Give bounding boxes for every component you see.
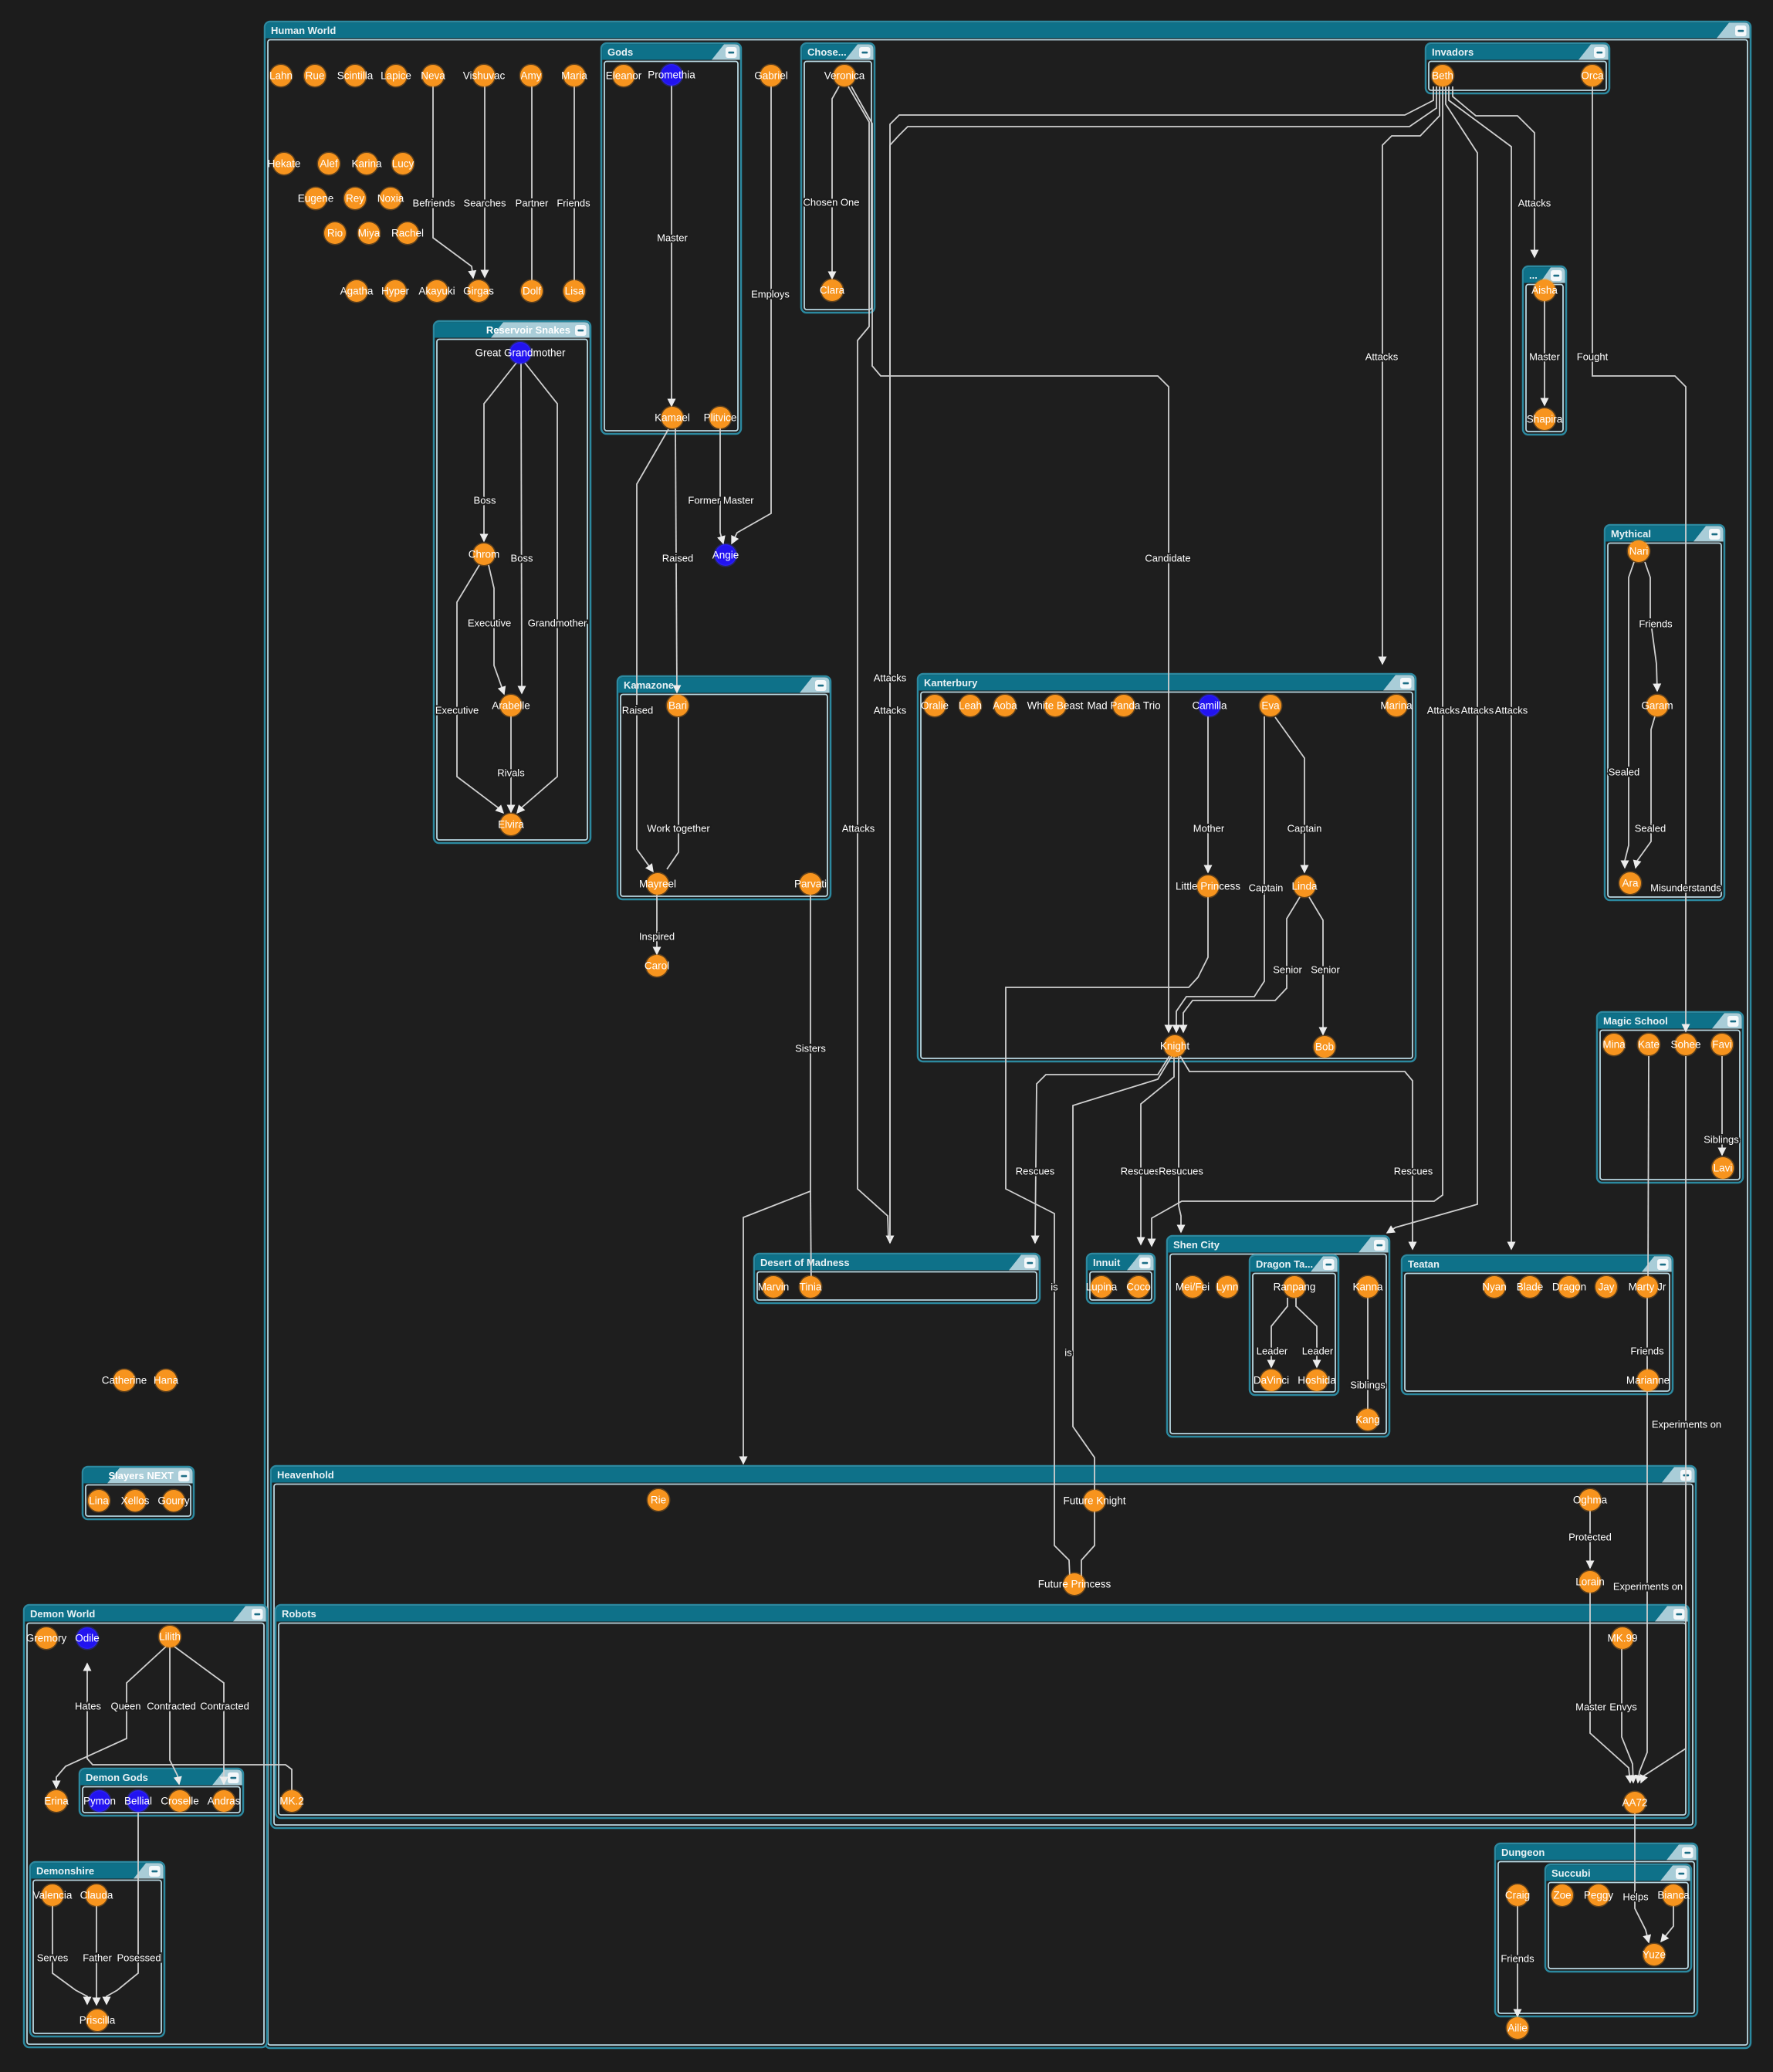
svg-text:Angie: Angie [712,550,739,561]
svg-text:Future Princess: Future Princess [1038,1579,1112,1590]
svg-text:Kanterbury: Kanterbury [924,677,978,689]
svg-text:Tinia: Tinia [800,1281,822,1293]
svg-text:Attacks: Attacks [842,823,875,835]
svg-text:Promethia: Promethia [648,69,695,81]
svg-text:Lisa: Lisa [565,286,584,297]
svg-text:Linda: Linda [1291,881,1318,892]
svg-text:Former Master: Former Master [688,495,754,506]
svg-text:Teatan: Teatan [1408,1258,1440,1270]
svg-text:Sealed: Sealed [1609,767,1639,778]
svg-text:Dolf: Dolf [523,286,541,297]
svg-text:Carol: Carol [645,960,669,972]
svg-text:Eugene: Eugene [298,193,334,205]
svg-text:Queen: Queen [110,1701,140,1712]
svg-text:Garam: Garam [1641,700,1673,712]
svg-text:Hekate: Hekate [268,158,301,170]
svg-text:Leader: Leader [1302,1346,1334,1357]
svg-text:Maria: Maria [561,70,587,82]
svg-text:Boss: Boss [474,495,496,506]
svg-text:Master: Master [1575,1701,1606,1713]
svg-text:Mother: Mother [1193,823,1225,835]
svg-text:Attacks: Attacks [874,672,907,684]
svg-text:Rivals: Rivals [497,767,525,779]
svg-text:Peggy: Peggy [1584,1890,1614,1901]
svg-text:Amy: Amy [521,70,542,82]
svg-text:Protected: Protected [1568,1532,1612,1543]
svg-text:Agatha: Agatha [340,286,374,297]
svg-text:Marty Jr: Marty Jr [1629,1281,1666,1293]
svg-text:Shen City: Shen City [1173,1239,1220,1251]
svg-text:Executive: Executive [435,705,479,716]
svg-text:Master: Master [657,232,688,244]
svg-text:Friends: Friends [1501,1953,1534,1965]
svg-text:Kanna: Kanna [1352,1281,1383,1293]
svg-text:Marianne: Marianne [1626,1375,1670,1386]
svg-text:Mad Panda Trio: Mad Panda Trio [1087,700,1160,712]
svg-text:Ranpang: Ranpang [1274,1281,1316,1293]
svg-text:Succubi: Succubi [1551,1867,1591,1879]
svg-text:Nari: Nari [1629,546,1649,557]
svg-text:Future Knight: Future Knight [1063,1495,1125,1507]
svg-text:Demon Gods: Demon Gods [86,1772,148,1783]
svg-text:Marvin: Marvin [758,1281,790,1293]
svg-text:Father: Father [83,1952,112,1964]
svg-text:Craig: Craig [1505,1890,1530,1901]
svg-text:Bellial: Bellial [124,1796,152,1807]
svg-text:Hana: Hana [154,1375,179,1386]
svg-text:Friends: Friends [557,198,590,209]
svg-text:Attacks: Attacks [1461,705,1494,716]
svg-text:Magic School: Magic School [1603,1015,1668,1027]
svg-text:Great Grandmother: Great Grandmother [475,347,566,359]
svg-text:Human World: Human World [271,25,336,36]
svg-text:Pymon: Pymon [83,1796,116,1807]
svg-text:Friends: Friends [1630,1346,1664,1357]
svg-text:Desert of Madness: Desert of Madness [760,1257,850,1268]
svg-text:Miya: Miya [358,228,381,239]
svg-text:Dungeon: Dungeon [1501,1847,1545,1858]
svg-text:Lilith: Lilith [159,1631,181,1643]
svg-text:Lynn: Lynn [1216,1281,1239,1293]
svg-text:Befriends: Befriends [413,198,455,209]
svg-text:Rescues: Rescues [1121,1166,1160,1177]
svg-text:Rescues: Rescues [1394,1166,1433,1177]
svg-text:Xellos: Xellos [121,1495,150,1507]
svg-text:Contracted: Contracted [200,1701,249,1712]
svg-text:Ailie: Ailie [1507,2023,1528,2034]
svg-text:Aoba: Aoba [993,700,1017,712]
svg-text:Serves: Serves [37,1952,69,1964]
svg-text:Gods: Gods [607,46,633,58]
svg-text:Oralie: Oralie [921,700,949,712]
svg-text:is: is [1051,1281,1058,1293]
svg-text:Work together: Work together [647,823,710,835]
svg-text:Captain: Captain [1249,882,1284,894]
svg-text:Lavi: Lavi [1714,1163,1733,1174]
svg-text:Leah: Leah [959,700,982,712]
svg-text:Ara: Ara [1622,878,1639,889]
svg-text:Captain: Captain [1287,823,1322,835]
svg-text:Akayuki: Akayuki [418,286,455,297]
svg-text:Demonshire: Demonshire [36,1865,94,1877]
svg-text:Lorain: Lorain [1575,1576,1605,1588]
svg-text:Raised: Raised [622,705,653,716]
svg-text:Posessed: Posessed [117,1952,161,1964]
svg-text:Helps: Helps [1622,1891,1649,1903]
svg-text:Hyper: Hyper [381,286,410,297]
svg-text:Senior: Senior [1273,964,1302,976]
svg-text:Rey: Rey [346,193,364,205]
svg-text:Fought: Fought [1577,351,1609,363]
svg-text:Heavenhold: Heavenhold [277,1469,334,1481]
svg-text:Invadors: Invadors [1432,46,1474,58]
svg-text:Shapira: Shapira [1527,414,1563,425]
svg-text:Rie: Rie [651,1495,666,1506]
svg-text:Attacks: Attacks [874,705,907,716]
svg-text:Candidate: Candidate [1145,553,1190,564]
svg-text:Kamael: Kamael [655,412,690,424]
svg-text:Siblings: Siblings [1704,1134,1739,1146]
svg-text:Master: Master [1529,351,1560,363]
svg-text:Senior: Senior [1311,964,1340,976]
svg-text:Croselle: Croselle [161,1796,199,1807]
svg-text:Employs: Employs [751,289,790,300]
svg-text:Kang: Kang [1355,1414,1380,1426]
svg-text:Zoe: Zoe [1553,1890,1571,1901]
svg-text:Parvati: Parvati [794,879,827,890]
svg-text:is: is [1064,1347,1072,1359]
svg-text:...: ... [1529,269,1538,281]
svg-text:Rescues: Rescues [1016,1166,1055,1177]
svg-text:White Beast: White Beast [1027,700,1084,712]
svg-text:Misunderstands: Misunderstands [1650,882,1721,894]
svg-text:Veronica: Veronica [824,70,865,82]
svg-text:Reservoir Snakes: Reservoir Snakes [486,324,570,336]
svg-text:Dragon: Dragon [1552,1281,1586,1293]
svg-text:Odile: Odile [75,1633,100,1644]
svg-text:Mina: Mina [1602,1039,1626,1051]
svg-text:Bianca: Bianca [1657,1890,1690,1901]
svg-text:Andras: Andras [208,1796,241,1807]
svg-text:Contracted: Contracted [147,1701,196,1712]
svg-text:Arabelle: Arabelle [492,700,530,712]
svg-text:Resucues: Resucues [1159,1166,1203,1177]
svg-text:Scintilla: Scintilla [337,70,374,82]
svg-text:Sealed: Sealed [1635,823,1666,835]
svg-text:Mei/Fei: Mei/Fei [1176,1281,1210,1293]
svg-text:Girgas: Girgas [463,286,494,297]
svg-text:Hates: Hates [75,1701,101,1712]
svg-text:Bob: Bob [1315,1041,1334,1053]
svg-text:AA72: AA72 [1622,1797,1647,1809]
svg-text:Lahn: Lahn [269,70,293,82]
svg-text:Bari: Bari [668,700,687,712]
svg-text:Attacks: Attacks [1427,705,1460,716]
svg-text:Coco: Coco [1126,1281,1151,1293]
svg-text:Envys: Envys [1609,1701,1637,1713]
svg-text:Lina: Lina [89,1495,109,1507]
svg-text:Searches: Searches [464,198,506,209]
svg-text:Leader: Leader [1257,1346,1288,1357]
svg-text:Yuze: Yuze [1643,1949,1666,1961]
svg-text:Chrom: Chrom [469,549,500,560]
svg-text:Valencia: Valencia [33,1890,73,1901]
svg-text:Experiments on: Experiments on [1652,1419,1721,1430]
svg-text:Hoshida: Hoshida [1298,1375,1336,1386]
svg-text:Marina: Marina [1380,700,1413,712]
svg-text:Chosen One: Chosen One [804,197,860,208]
svg-text:Catherine: Catherine [102,1375,147,1386]
svg-text:Friends: Friends [1639,618,1673,630]
svg-text:Executive: Executive [468,618,511,629]
svg-text:Rio: Rio [327,228,343,239]
svg-text:Chose...: Chose... [807,46,847,58]
svg-text:Favi: Favi [1712,1039,1732,1051]
svg-text:Attacks: Attacks [1365,351,1399,363]
svg-text:Dragon Ta...: Dragon Ta... [1256,1258,1313,1270]
svg-text:Beth: Beth [1432,70,1453,82]
svg-text:Kamazone: Kamazone [624,679,674,691]
svg-text:Attacks: Attacks [1518,198,1551,209]
svg-text:Sohee: Sohee [1670,1039,1700,1051]
svg-text:Eleanor: Eleanor [606,70,642,82]
svg-text:Oghma: Oghma [1573,1495,1608,1506]
svg-text:Aisha: Aisha [1531,285,1558,296]
svg-text:Noxia: Noxia [377,193,404,205]
svg-text:Neva: Neva [421,70,445,82]
svg-text:Erina: Erina [44,1796,69,1807]
svg-text:Experiments on: Experiments on [1613,1581,1683,1593]
svg-text:Elvira: Elvira [498,819,524,831]
svg-text:Rachel: Rachel [391,228,424,239]
svg-text:Innuit: Innuit [1093,1257,1121,1268]
svg-text:Mayreel: Mayreel [639,879,676,890]
svg-text:Demon World: Demon World [30,1608,95,1620]
svg-text:Jay: Jay [1598,1281,1614,1293]
svg-text:Priscilla: Priscilla [80,2015,116,2026]
svg-text:Siblings: Siblings [1350,1380,1386,1391]
svg-text:Grandmother: Grandmother [528,618,587,629]
svg-text:Raised: Raised [662,553,693,564]
svg-text:Gabriel: Gabriel [754,70,788,82]
svg-text:Rue: Rue [306,70,325,82]
svg-text:Little Princess: Little Princess [1176,881,1240,892]
svg-text:Sisters: Sisters [795,1043,826,1055]
svg-text:Lucy: Lucy [392,158,414,170]
svg-text:Inspired: Inspired [639,931,675,943]
svg-text:Karina: Karina [351,158,382,170]
svg-text:Clara: Clara [820,285,845,296]
svg-text:Lapice: Lapice [381,70,411,82]
svg-text:Vishuvac: Vishuvac [463,70,506,82]
svg-text:Clauda: Clauda [80,1890,113,1901]
svg-text:Slayers NEXT: Slayers NEXT [108,1470,174,1481]
svg-text:MK.2: MK.2 [279,1796,304,1807]
svg-text:Mythical: Mythical [1611,528,1651,540]
svg-text:Nyan: Nyan [1482,1281,1507,1293]
svg-text:Kate: Kate [1638,1039,1660,1051]
svg-text:Camilla: Camilla [1192,700,1227,712]
svg-text:Gremory: Gremory [26,1633,67,1644]
svg-text:Attacks: Attacks [1495,705,1528,716]
svg-text:DaVinci: DaVinci [1254,1375,1289,1386]
svg-text:Eva: Eva [1261,700,1280,712]
svg-text:Gourry: Gourry [157,1495,190,1507]
svg-text:Knight: Knight [1160,1041,1190,1052]
svg-text:MK.99: MK.99 [1607,1633,1637,1644]
svg-text:Lupina: Lupina [1086,1281,1118,1293]
svg-text:Boss: Boss [511,553,533,564]
svg-text:Alef: Alef [320,158,338,170]
svg-text:Blade: Blade [1517,1281,1544,1293]
svg-text:Orca: Orca [1581,70,1604,82]
svg-text:Partner: Partner [516,198,549,209]
svg-text:Plitvice: Plitvice [704,412,737,424]
svg-text:Robots: Robots [282,1608,316,1620]
